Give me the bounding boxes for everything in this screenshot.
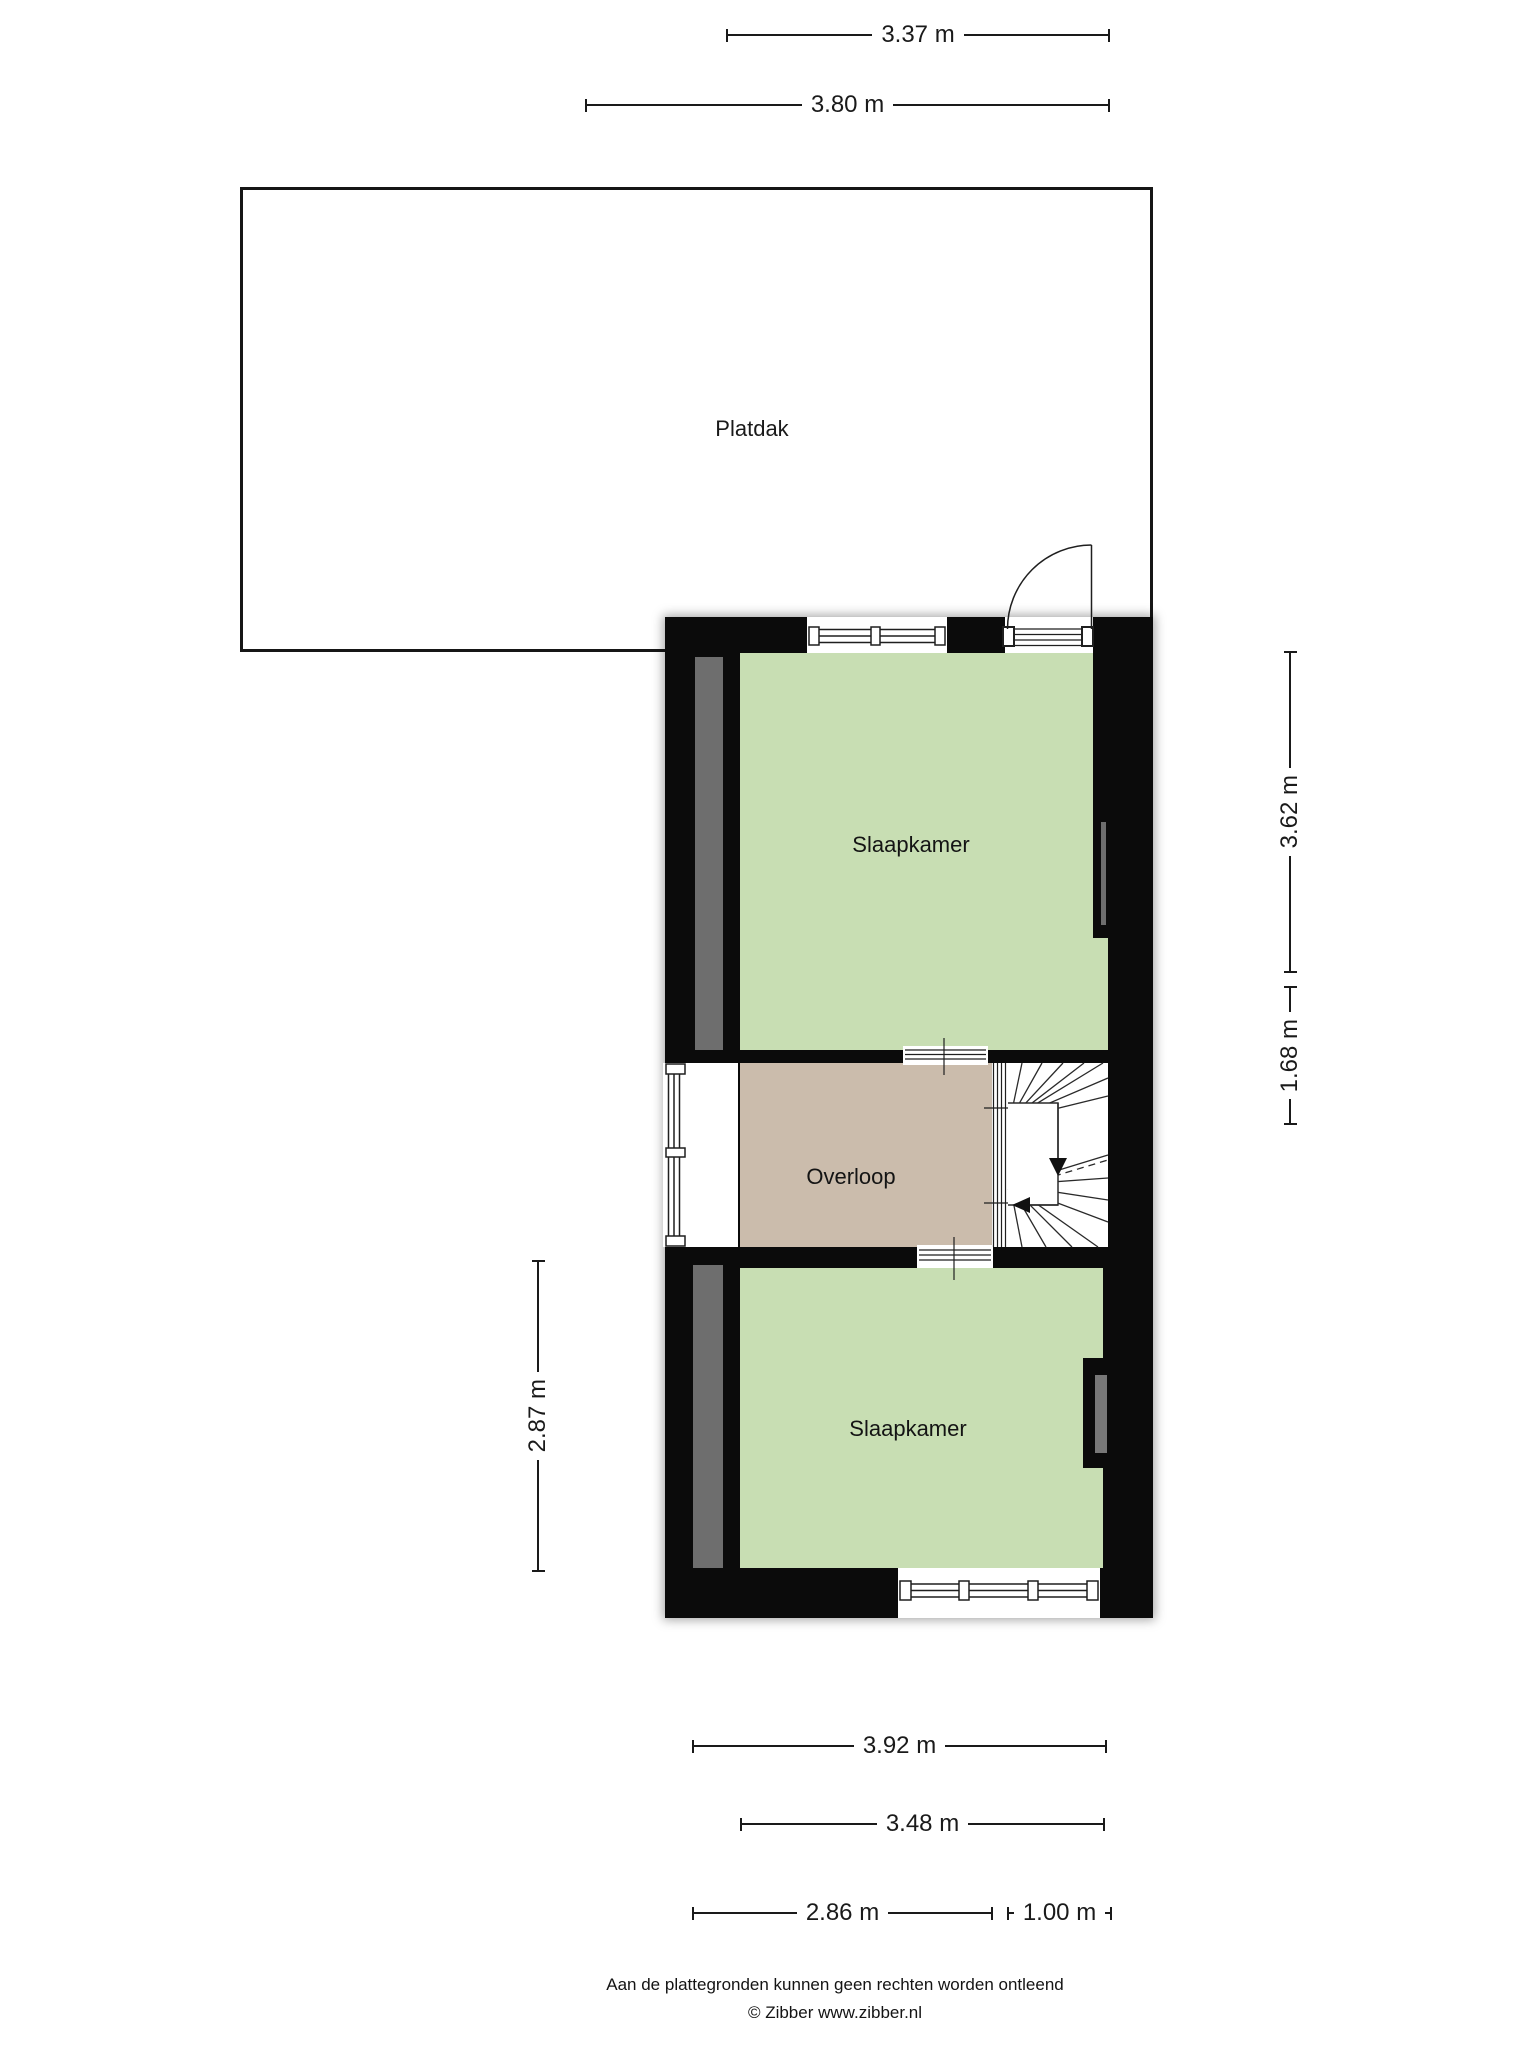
dimension-bottom-1: 3.92 m xyxy=(692,1733,1107,1759)
dim-tick xyxy=(1103,1818,1105,1831)
dimension-left-1: 2.87 m xyxy=(525,1260,551,1572)
wall-right-middle xyxy=(1108,938,1153,1247)
dim-line xyxy=(1289,1099,1291,1123)
dim-line xyxy=(888,1912,991,1914)
dim-line xyxy=(1289,653,1291,768)
dim-tick xyxy=(991,1907,993,1920)
footer-credit: © Zibber www.zibber.nl xyxy=(606,1999,1063,2027)
dimension-top-1: 3.37 m xyxy=(726,22,1110,48)
dim-tick xyxy=(1284,971,1297,973)
floor-plan-page: Platdak xyxy=(0,0,1536,2048)
dimension-bottom-2: 3.48 m xyxy=(740,1811,1105,1837)
dim-line xyxy=(587,104,802,106)
dim-line xyxy=(1289,988,1291,1012)
dimension-right-1: 3.62 m xyxy=(1277,651,1303,973)
knee-wall-top-room xyxy=(695,657,723,1050)
room-slaapkamer-top-extension xyxy=(1093,938,1108,1050)
flat-roof-label: Platdak xyxy=(715,416,788,442)
wall-bottom xyxy=(665,1568,1153,1618)
dim-line xyxy=(964,34,1108,36)
wall-right-lower xyxy=(1103,1247,1153,1568)
chimney-slot-bottom xyxy=(1095,1375,1107,1453)
dim-label: 2.86 m xyxy=(797,1899,888,1927)
dimension-bottom-4: 1.00 m xyxy=(1007,1900,1112,1926)
dim-label: 1.68 m xyxy=(1276,1012,1304,1099)
dim-line xyxy=(537,1460,539,1570)
dim-label: 3.92 m xyxy=(854,1732,945,1760)
dim-tick xyxy=(1108,29,1110,42)
room-overloop xyxy=(740,1063,992,1247)
footer: Aan de plattegronden kunnen geen rechten… xyxy=(606,1971,1063,2027)
footer-disclaimer: Aan de plattegronden kunnen geen rechten… xyxy=(606,1971,1063,1999)
wall-overloop-top xyxy=(740,1050,1108,1063)
dim-tick xyxy=(1110,1907,1112,1920)
dim-line xyxy=(694,1745,854,1747)
dimension-top-2: 3.80 m xyxy=(585,92,1110,118)
dim-tick xyxy=(1108,99,1110,112)
dim-tick xyxy=(532,1570,545,1572)
dim-line xyxy=(968,1823,1103,1825)
dimension-bottom-3: 2.86 m xyxy=(692,1900,993,1926)
knee-wall-bottom-room xyxy=(693,1265,723,1568)
dim-line xyxy=(728,34,872,36)
dim-line xyxy=(537,1262,539,1372)
dim-label: 3.80 m xyxy=(802,91,893,119)
dim-line xyxy=(742,1823,877,1825)
dim-label: 2.87 m xyxy=(524,1372,552,1459)
dimension-right-2: 1.68 m xyxy=(1277,986,1303,1125)
dim-line xyxy=(893,104,1108,106)
dim-tick xyxy=(1105,1740,1107,1753)
flat-roof-area xyxy=(240,187,1153,652)
room-label-overloop: Overloop xyxy=(806,1164,895,1190)
dim-line xyxy=(945,1745,1105,1747)
dim-label: 3.37 m xyxy=(872,21,963,49)
room-label-slaapkamer-bottom: Slaapkamer xyxy=(849,1416,966,1442)
room-label-slaapkamer-top: Slaapkamer xyxy=(852,832,969,858)
dim-tick xyxy=(1284,1123,1297,1125)
dim-line xyxy=(1289,856,1291,971)
dim-label: 1.00 m xyxy=(1014,1899,1105,1927)
wall-overloop-bottom xyxy=(740,1247,1108,1268)
dim-label: 3.62 m xyxy=(1276,768,1304,855)
dim-label: 3.48 m xyxy=(877,1810,968,1838)
chimney-slot-top xyxy=(1101,822,1106,925)
dim-line xyxy=(694,1912,797,1914)
